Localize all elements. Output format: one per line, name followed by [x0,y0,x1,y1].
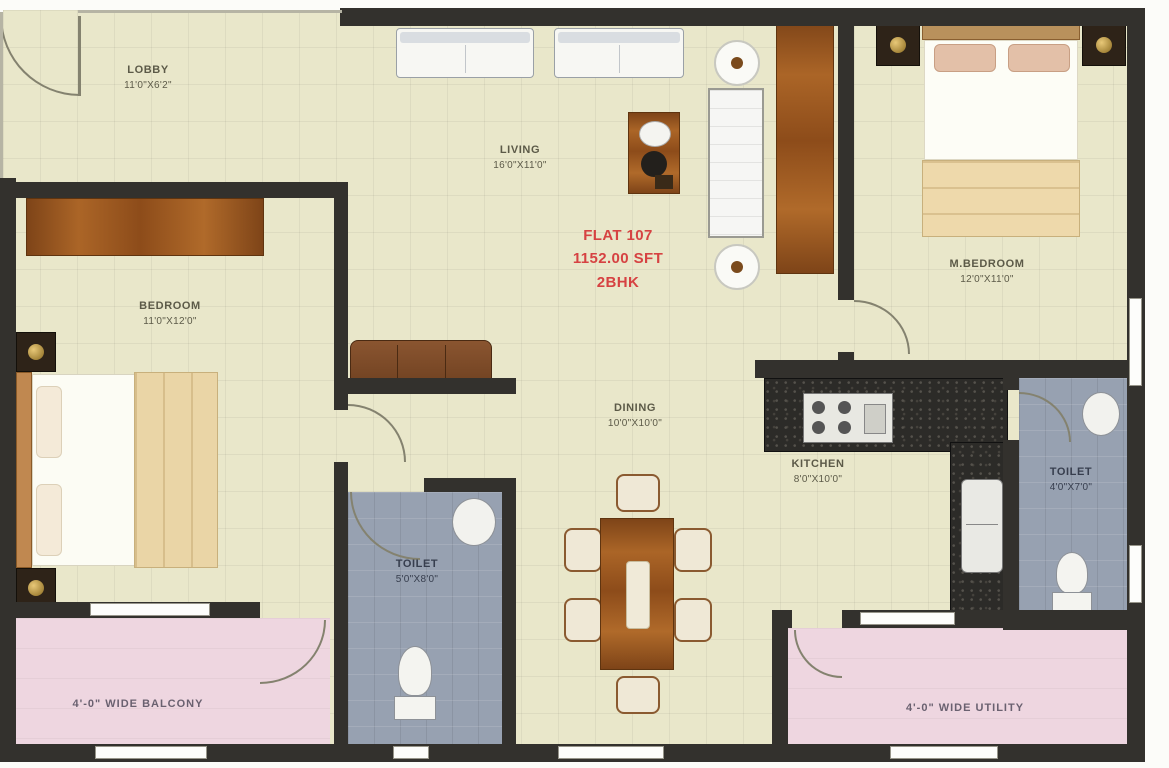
wall-lobby-left-line [0,12,3,180]
planter-center [731,261,743,273]
foyer-shelf-unit [708,88,764,238]
table-runner [626,561,650,629]
label-bedroom: BEDROOM 11'0"X12'0" [105,300,235,328]
wall-left [0,178,16,762]
bedroom-dims: 11'0"X12'0" [105,316,235,328]
dining-name: DINING [614,402,656,414]
wall-sofa [334,378,516,394]
dining-chair [616,676,660,714]
window-toilet-right-vent [1129,545,1142,603]
stove-tray [864,404,886,434]
bedroom-nightstand-top [16,332,56,372]
bed-pillow [36,484,62,556]
mbedroom-nightstand-left [876,24,920,66]
wc-tank [1052,592,1092,612]
label-mbedroom: M.BEDROOM 12'0"X11'0" [912,258,1062,286]
wc-bowl [1056,552,1088,594]
mbedroom-name: M.BEDROOM [949,258,1024,270]
bedroom-bed [16,372,218,568]
bed-pillow [1008,44,1070,72]
dining-chair [616,474,660,512]
living-dims: 16'0"X11'0" [455,160,585,172]
bed-pillow [36,386,62,458]
toilet-right-name: TOILET [1050,466,1093,478]
label-flat: FLAT 107 1152.00 SFT 2BHK [548,224,688,294]
toilet-right-wc [1048,552,1094,612]
wall-mbedroom-left-upper [838,8,854,300]
mbedroom-dims: 12'0"X11'0" [912,274,1062,286]
toilet-center-dims: 5'0"X8'0" [362,574,472,586]
flat-area: 1152.00 SFT [548,247,688,270]
foyer-planter-top [714,40,760,86]
foyer-planter-bottom [714,244,760,290]
label-balcony: 4'-0" WIDE BALCONY [18,698,258,711]
planter-center [731,57,743,69]
burner [838,421,851,434]
label-utility: 4'-0" WIDE UTILITY [845,702,1085,715]
dining-table [600,518,674,670]
wall-top [340,8,1145,26]
wc-tank [394,696,436,720]
dining-chair [564,598,602,642]
lobby-name: LOBBY [127,64,169,76]
window-dining-bottom [558,746,664,759]
wall-lobby-top-line [78,10,342,13]
window-mbedroom-right [1129,298,1142,386]
window-balcony-bottom [95,746,207,759]
bed-blanket [922,160,1080,237]
toilet-center-name: TOILET [396,558,439,570]
tv-cabinet-unit [628,112,680,194]
bed-headboard [16,372,32,568]
wc-bowl [398,646,432,696]
bedroom-wardrobe [26,198,264,256]
toilet-center-washbasin [452,498,496,546]
cabinet-drawer [655,175,673,189]
window-toilet-center-vent [393,746,429,759]
wall-bedroom-right-upper [334,182,348,410]
label-toilet-right: TOILET 4'0"X7'0" [1022,466,1120,494]
window-bedroom-balcony [90,603,210,616]
wall-toilet-right-left-upper [1003,378,1019,390]
cabinet-top-decor [639,121,671,147]
kitchen-sink [961,479,1003,573]
bedroom-name: BEDROOM [139,300,201,312]
flat-type: 2BHK [548,271,688,294]
kitchen-name: KITCHEN [791,458,844,470]
burner [812,421,825,434]
mbedroom-bed [922,22,1080,237]
wall-toilet-right-left-lower [1003,440,1019,618]
label-dining: DINING 10'0"X10'0" [575,402,695,430]
label-living: LIVING 16'0"X11'0" [455,144,585,172]
bed-pillow [934,44,996,72]
kitchen-counter-right [950,442,1008,626]
stove [803,393,893,443]
burner [812,401,825,414]
living-name: LIVING [500,144,540,156]
burner [838,401,851,414]
kitchen-counter-top [764,378,1008,452]
dining-chair [674,528,712,572]
window-utility-bottom [890,746,998,759]
foyer-wardrobe-partition [776,18,834,274]
bed-blanket [134,372,218,568]
kitchen-dims: 8'0"X10'0" [758,474,878,486]
wall-kitchen-top [755,360,1145,378]
lobby-dims: 11'0"X6'2" [88,80,208,92]
toilet-right-dims: 4'0"X7'0" [1022,482,1120,494]
dining-chair [564,528,602,572]
label-toilet-center: TOILET 5'0"X8'0" [362,558,472,586]
flat-number: FLAT 107 [548,224,688,247]
sink-divider [966,524,998,525]
wall-utility-left [772,610,788,755]
label-lobby: LOBBY 11'0"X6'2" [88,64,208,92]
living-sofa-right [554,28,684,78]
wall-bedroom-top [0,182,348,198]
dining-chair [674,598,712,642]
floor-plan: LOBBY 11'0"X6'2" LIVING 16'0"X11'0" FLAT… [0,0,1169,768]
living-sofa-left [396,28,534,78]
dining-set [560,474,712,712]
mbedroom-nightstand-right [1082,24,1126,66]
toilet-center-wc [390,644,438,720]
toilet-right-washbasin [1082,392,1120,436]
wall-bedroom-right-lower [334,462,348,762]
wall-toilet-center-right [502,478,516,746]
cabinet-speaker [641,151,667,177]
label-kitchen: KITCHEN 8'0"X10'0" [758,458,878,486]
balcony-name: 4'-0" WIDE BALCONY [73,698,204,710]
window-kitchen-utility [860,612,955,625]
door-leaf-entrance [78,16,81,96]
dining-dims: 10'0"X10'0" [575,418,695,430]
utility-name: 4'-0" WIDE UTILITY [906,702,1024,714]
